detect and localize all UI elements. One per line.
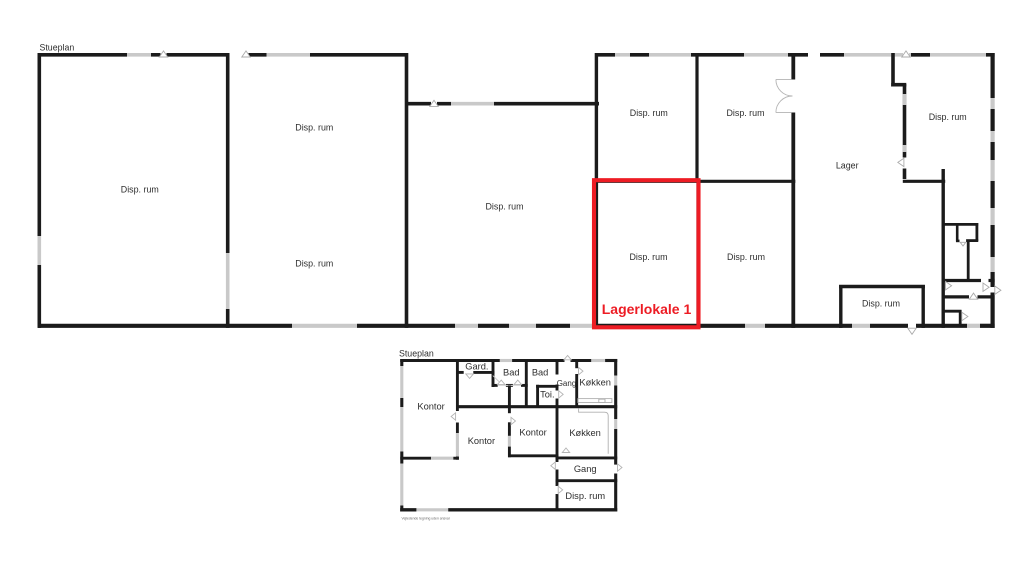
svg-text:Lagerlokale 1: Lagerlokale 1 — [602, 301, 692, 317]
svg-text:Lager: Lager — [836, 160, 859, 170]
svg-text:Stueplan: Stueplan — [399, 349, 434, 359]
svg-text:Gang: Gang — [557, 379, 577, 388]
svg-text:Stueplan: Stueplan — [40, 42, 75, 52]
svg-text:Disp. rum: Disp. rum — [630, 252, 668, 262]
svg-text:Disp. rum: Disp. rum — [727, 252, 765, 262]
svg-text:Gard.: Gard. — [465, 362, 488, 372]
svg-text:Bad: Bad — [503, 368, 520, 378]
svg-text:Disp. rum: Disp. rum — [121, 185, 159, 195]
svg-text:Kontor: Kontor — [468, 436, 495, 446]
svg-text:Bad: Bad — [532, 368, 549, 378]
svg-text:Køkken: Køkken — [579, 378, 611, 388]
svg-text:Disp. rum: Disp. rum — [295, 122, 333, 132]
svg-text:Disp. rum: Disp. rum — [929, 112, 967, 122]
svg-text:Disp. rum: Disp. rum — [295, 258, 333, 268]
svg-text:Disp. rum: Disp. rum — [565, 491, 605, 501]
svg-text:Disp. rum: Disp. rum — [486, 201, 524, 211]
svg-text:Kontor: Kontor — [519, 428, 546, 438]
svg-text:Toi.: Toi. — [540, 390, 554, 400]
svg-text:Vejledende tegning uden ansvar: Vejledende tegning uden ansvar — [402, 517, 451, 521]
svg-text:Gang: Gang — [574, 464, 597, 474]
svg-text:Disp. rum: Disp. rum — [727, 108, 765, 118]
svg-text:Køkken: Køkken — [569, 428, 601, 438]
svg-text:Kontor: Kontor — [417, 402, 444, 412]
svg-text:Disp. rum: Disp. rum — [630, 108, 668, 118]
svg-text:Disp. rum: Disp. rum — [862, 299, 900, 309]
